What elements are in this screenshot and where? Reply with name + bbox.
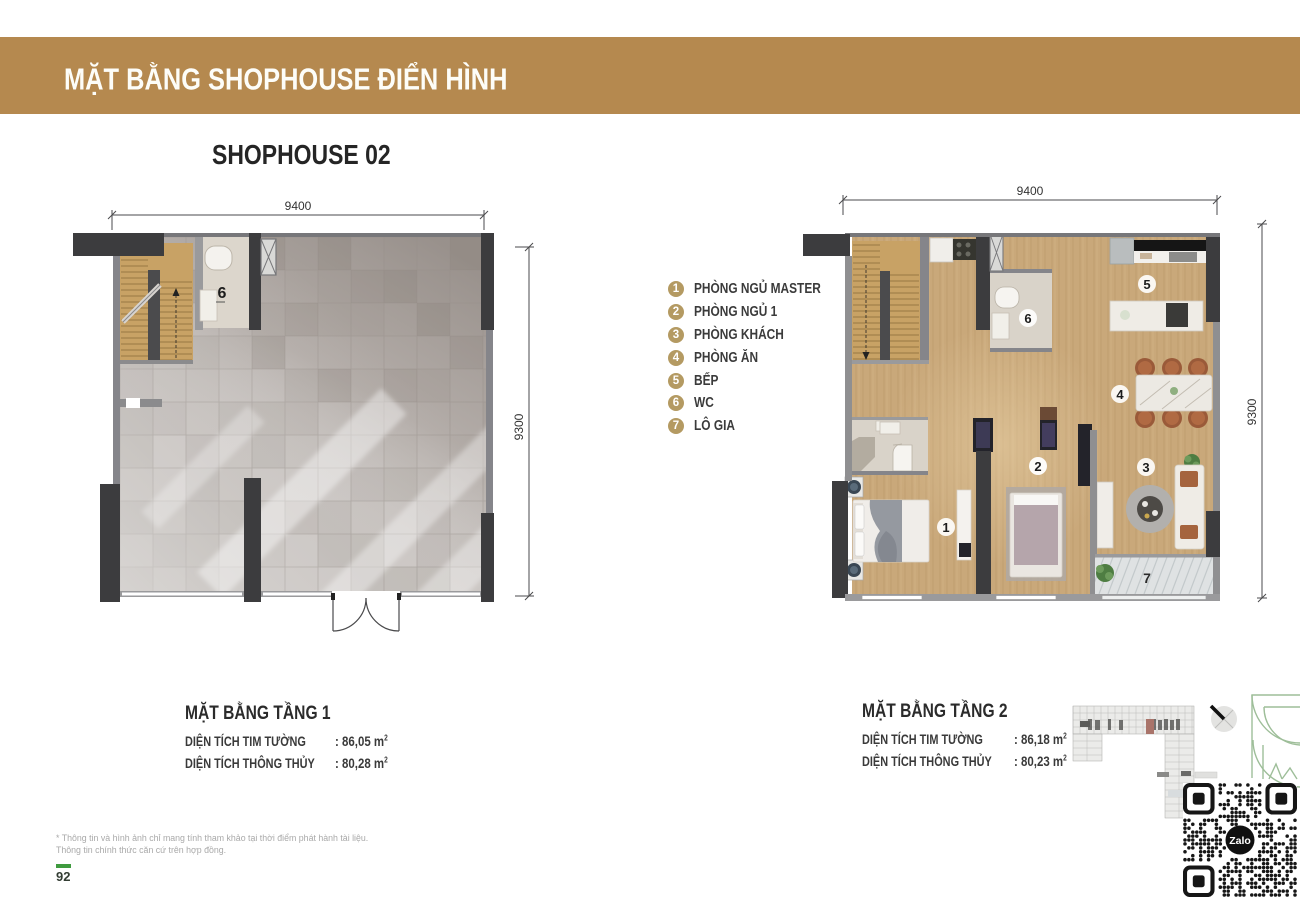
- svg-text:1: 1: [942, 520, 949, 535]
- svg-text:4: 4: [1116, 387, 1124, 402]
- svg-text:5: 5: [1143, 277, 1150, 292]
- svg-text:3: 3: [1142, 460, 1149, 475]
- svg-text:Zalo: Zalo: [1229, 835, 1251, 847]
- svg-text:6: 6: [1024, 311, 1031, 326]
- svg-text:7: 7: [1143, 570, 1151, 586]
- svg-text:9300: 9300: [512, 413, 526, 440]
- svg-text:9300: 9300: [1245, 398, 1259, 425]
- svg-text:6: 6: [218, 285, 227, 302]
- svg-text:9400: 9400: [285, 199, 312, 213]
- svg-text:9400: 9400: [1017, 184, 1044, 198]
- svg-text:2: 2: [1034, 459, 1041, 474]
